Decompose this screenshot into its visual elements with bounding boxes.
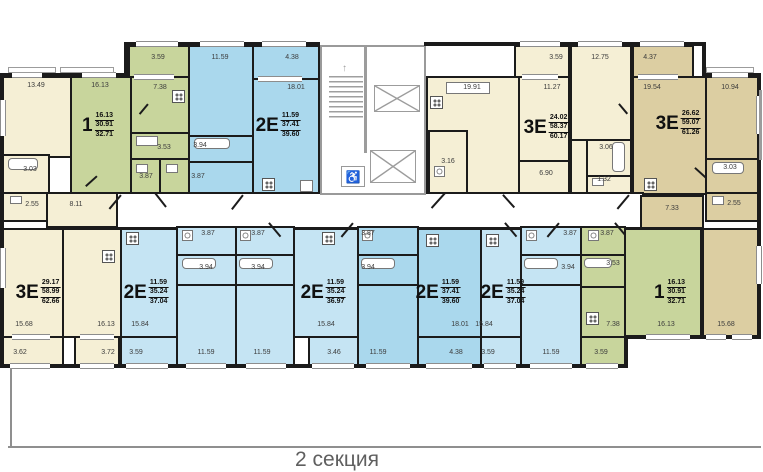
room-dimension: 4.38 bbox=[285, 54, 299, 61]
apartment-type: 3Е bbox=[16, 283, 39, 302]
room-dimension: 7.38 bbox=[606, 321, 620, 328]
washing-machine bbox=[526, 230, 537, 241]
apartment-label-bottom-blue1: 2Е 11.5935.2437.04 bbox=[124, 279, 169, 306]
room-dimension: 3.03 bbox=[23, 166, 37, 173]
loggia-3-62 bbox=[2, 336, 64, 366]
room-dimension: 16.13 bbox=[657, 321, 675, 328]
window bbox=[426, 363, 472, 369]
room-dimension: 15.84 bbox=[131, 321, 149, 328]
section-divider-line bbox=[8, 446, 761, 448]
apartment-type: 3Е bbox=[524, 118, 547, 137]
window bbox=[200, 41, 244, 47]
stove-icon bbox=[262, 178, 275, 191]
sink bbox=[136, 136, 158, 146]
window bbox=[10, 363, 50, 369]
washing-machine bbox=[588, 230, 599, 241]
room-dimension: 2.55 bbox=[727, 200, 741, 207]
apartment-type: 2Е bbox=[301, 283, 324, 302]
room-dimension: 3.87 bbox=[251, 230, 265, 237]
apartment-label-bottom-green: 1 16.1330.9132.71 bbox=[654, 279, 686, 306]
window bbox=[706, 334, 726, 340]
room-dimension: 3.59 bbox=[481, 349, 495, 356]
room-dimension: 15.84 bbox=[317, 321, 335, 328]
room-bedroom-11-59-b3 bbox=[357, 284, 419, 366]
room-dimension: 3.94 bbox=[361, 264, 375, 271]
room-dimension: 18.01 bbox=[287, 84, 305, 91]
apartment-type: 2Е bbox=[416, 283, 439, 302]
room-dimension: 3.03 bbox=[723, 164, 737, 171]
bathtub bbox=[524, 258, 558, 269]
stair-direction-arrow: ↑ bbox=[342, 64, 347, 74]
stove-icon bbox=[322, 232, 335, 245]
room-dimension: 13.49 bbox=[27, 82, 45, 89]
room-dimension: 3.06 bbox=[599, 144, 613, 151]
window bbox=[246, 363, 286, 369]
apartment-type: 2Е bbox=[124, 283, 147, 302]
room-dimension: 11.59 bbox=[543, 349, 560, 356]
room-dimension: 3.53 bbox=[606, 260, 620, 267]
window-side bbox=[0, 100, 6, 136]
room-dimension: 7.38 bbox=[153, 84, 167, 91]
washing-machine bbox=[240, 230, 251, 241]
apartment-type: 1 bbox=[654, 283, 665, 302]
wall-bottom-step bbox=[624, 337, 628, 368]
room-dimension: 3.53 bbox=[157, 144, 171, 151]
room-dimension: 3.59 bbox=[129, 349, 143, 356]
kitchen-counter bbox=[300, 180, 313, 192]
room-dimension: 3.94 bbox=[193, 142, 207, 149]
window bbox=[520, 41, 560, 47]
washing-machine bbox=[434, 166, 445, 177]
room-dimension: 3.94 bbox=[199, 264, 213, 271]
room-dimension: 16.13 bbox=[97, 321, 115, 328]
room-dimension: 11.59 bbox=[198, 349, 215, 356]
room-dimension: 3.87 bbox=[191, 173, 205, 180]
room-dimension: 16.13 bbox=[91, 82, 109, 89]
room-dimension: 11.59 bbox=[254, 349, 271, 356]
toilet bbox=[166, 164, 178, 173]
loggia-window bbox=[258, 76, 302, 82]
loggia-4-38-top bbox=[252, 45, 320, 80]
toilet bbox=[136, 164, 148, 173]
stove-icon bbox=[102, 250, 115, 263]
balcony-rail bbox=[60, 67, 114, 73]
room-dimension: 7.33 bbox=[665, 205, 679, 212]
window bbox=[80, 363, 114, 369]
room-dimension: 19.54 bbox=[643, 84, 661, 91]
window bbox=[136, 41, 178, 47]
room-dimension: 3.59 bbox=[549, 54, 563, 61]
room-dimension: 3.72 bbox=[101, 349, 115, 356]
room-dimension: 4.38 bbox=[449, 349, 463, 356]
window bbox=[732, 334, 752, 340]
window bbox=[366, 363, 410, 369]
apartment-label-top-blue: 2Е 11.5937.4139.60 bbox=[256, 112, 301, 139]
room-dimension: 15.84 bbox=[475, 321, 493, 328]
balcony-rail bbox=[8, 67, 56, 73]
room-dimension: 18.01 bbox=[451, 321, 469, 328]
room-dimension: 15.68 bbox=[15, 321, 33, 328]
window bbox=[640, 41, 684, 47]
room-dimension: 3.87 bbox=[600, 230, 614, 237]
room-dimension: 3.94 bbox=[561, 264, 575, 271]
apartment-label-top-green: 1 16.1330.9132.71 bbox=[82, 112, 114, 139]
apartment-type: 3Е bbox=[656, 114, 679, 133]
room-dimension: 3.46 bbox=[327, 349, 341, 356]
washing-machine bbox=[182, 230, 193, 241]
apartment-label-bottom-blue4: 2Е 11.5935.2437.04 bbox=[481, 279, 526, 306]
elevator-shaft-2 bbox=[370, 150, 416, 183]
room-dimension: 3.87 bbox=[361, 230, 375, 237]
apartment-type: 2Е bbox=[481, 283, 504, 302]
apartment-label-top-cream: 3Е 24.0258.3760.17 bbox=[524, 114, 569, 141]
elevator-shaft bbox=[374, 85, 420, 112]
room-hall-6-90 bbox=[518, 160, 570, 195]
room-dimension: 11.59 bbox=[212, 54, 229, 61]
apartment-label-bottom-cream: 3Е 29.1758.9962.66 bbox=[16, 279, 61, 306]
room-dimension: 10.94 bbox=[721, 84, 739, 91]
stove-icon bbox=[126, 232, 139, 245]
window bbox=[262, 41, 306, 47]
toilet bbox=[712, 196, 724, 205]
staircase bbox=[329, 76, 363, 120]
room-dimension: 11.27 bbox=[544, 84, 561, 91]
apartment-label-bottom-blue2: 2Е 11.5935.2436.97 bbox=[301, 279, 346, 306]
room-hall-7-33 bbox=[640, 195, 704, 229]
floor-plan: ↑ ♿ bbox=[0, 0, 763, 472]
stairwell-wall bbox=[364, 47, 367, 153]
balcony-rail-side bbox=[759, 90, 762, 160]
room-dimension: 11.59 bbox=[370, 349, 387, 356]
stove-icon bbox=[430, 96, 443, 109]
room-dimension: 2.55 bbox=[25, 201, 39, 208]
room-dimension: 19.91 bbox=[463, 84, 481, 91]
room-dimension: 12.75 bbox=[591, 54, 609, 61]
corridor bbox=[114, 192, 644, 229]
room-dimension: 3.59 bbox=[151, 54, 165, 61]
sink bbox=[10, 196, 22, 204]
wheelchair-accessible-icon: ♿ bbox=[341, 166, 365, 187]
room-dimension: 8.11 bbox=[69, 201, 82, 208]
loggia-window bbox=[134, 74, 174, 80]
room-dimension: 3.94 bbox=[251, 264, 265, 271]
balcony-rail bbox=[706, 67, 754, 73]
stove-icon bbox=[426, 234, 439, 247]
window bbox=[312, 363, 354, 369]
room-dimension: 3.16 bbox=[441, 158, 455, 165]
window bbox=[484, 363, 516, 369]
room-dimension: 3.87 bbox=[201, 230, 215, 237]
window-side bbox=[0, 248, 6, 288]
bathtub bbox=[612, 142, 625, 172]
room-dimension: 3.87 bbox=[563, 230, 577, 237]
apartment-label-top-tan: 3Е 26.6259.0761.26 bbox=[656, 110, 701, 137]
room-dimension: 3.62 bbox=[13, 349, 27, 356]
loggia-window bbox=[522, 74, 558, 80]
loggia-window bbox=[80, 334, 114, 340]
loggia-window bbox=[638, 74, 678, 80]
room-dimension: 4.37 bbox=[643, 54, 657, 61]
window bbox=[578, 41, 622, 47]
room-hall-8-11-overlay bbox=[46, 192, 118, 228]
section-boundary-vertical bbox=[10, 368, 12, 446]
apartment-type: 2Е bbox=[256, 116, 279, 135]
apartment-type: 1 bbox=[82, 116, 93, 135]
loggia-window bbox=[12, 334, 50, 340]
apartment-label-bottom-blue3: 2Е 11.5937.4139.60 bbox=[416, 279, 461, 306]
window bbox=[186, 363, 226, 369]
window bbox=[126, 363, 168, 369]
window bbox=[530, 363, 572, 369]
section-title: 2 секция bbox=[295, 448, 379, 472]
room-dimension: 6.90 bbox=[539, 170, 553, 177]
room-dimension: 1.32 bbox=[597, 176, 611, 183]
window-side bbox=[756, 246, 762, 284]
room-dimension: 3.87 bbox=[139, 173, 153, 180]
window bbox=[586, 363, 618, 369]
stove-icon bbox=[586, 312, 599, 325]
stove-icon bbox=[172, 90, 185, 103]
window bbox=[646, 334, 690, 340]
stove-icon bbox=[644, 178, 657, 191]
stove-icon bbox=[486, 234, 499, 247]
room-dimension: 15.68 bbox=[717, 321, 735, 328]
room-dimension: 3.59 bbox=[594, 349, 608, 356]
wall-step-left bbox=[124, 42, 128, 77]
